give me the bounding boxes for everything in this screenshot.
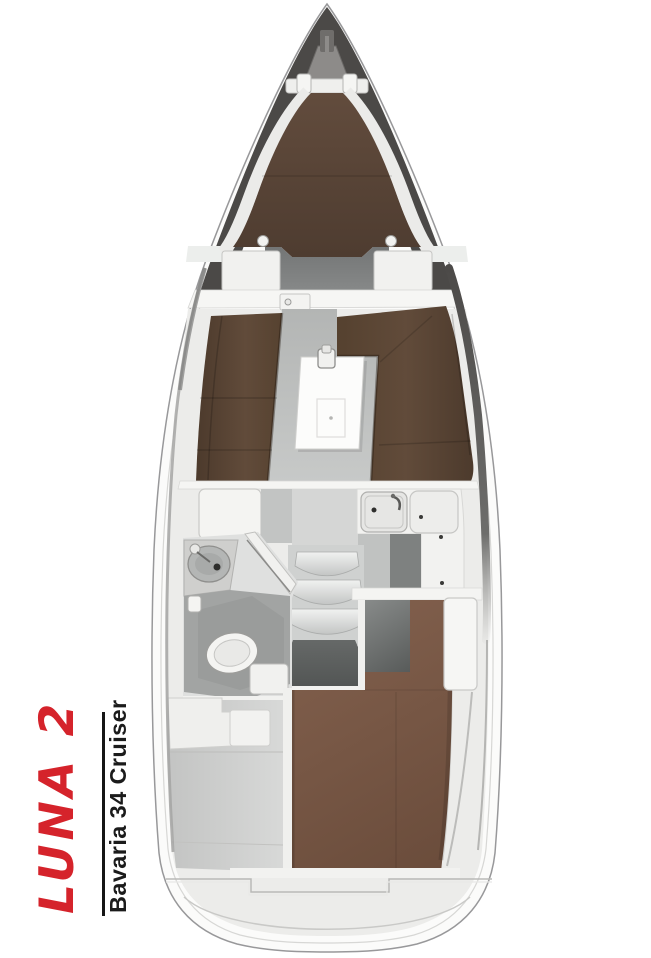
boat-name-label: LUNA 2 [34,700,81,914]
cabin-light-port [258,236,269,247]
galley-recess [390,534,421,592]
boat-model-label: Bavaria 34 Cruiser [107,699,131,913]
forward-locker-starboard [374,251,432,291]
forward-locker-port [222,251,280,291]
wardrobe [444,598,477,690]
transom-band [230,868,460,878]
companionway-side-wall [358,600,365,690]
galley-stove [410,491,458,533]
toilet-cistern-shelf [250,664,288,694]
locker-latch-2 [439,535,443,539]
mid-bulkhead [178,481,479,489]
door-handle [285,299,291,305]
head-access-floor [261,489,292,543]
storage-hatch [230,710,270,746]
locker-latch-1 [419,515,423,519]
locker-latch-3 [440,581,444,585]
companionway [286,545,365,692]
galley-faucet-base [391,494,395,498]
engine-compartment-floor [288,640,361,687]
head-sink-drain [214,564,221,571]
galley-sink [361,492,407,532]
windlass-slot [325,36,329,54]
boat-floor-plan: LUNA 2 Bavaria 34 Cruiser [0,0,651,958]
table-center-fitting [329,416,333,420]
toilet-paper-holder [188,596,201,612]
sink-drain [372,508,377,513]
companionway-hatch-area [292,489,358,545]
galley [357,489,464,598]
aft-cabin-floor-panel [364,600,410,672]
salon [196,306,473,481]
storage-shelf [168,698,232,749]
mast-post-cap [322,345,331,353]
cabin-dividing-wall [283,688,292,874]
salon-table [295,357,364,449]
chart-table [199,489,261,539]
boat-layout-drawing [0,0,651,958]
stern-storage [167,698,283,872]
forward-bulkhead [188,290,463,308]
cabin-light-starboard [386,236,397,247]
